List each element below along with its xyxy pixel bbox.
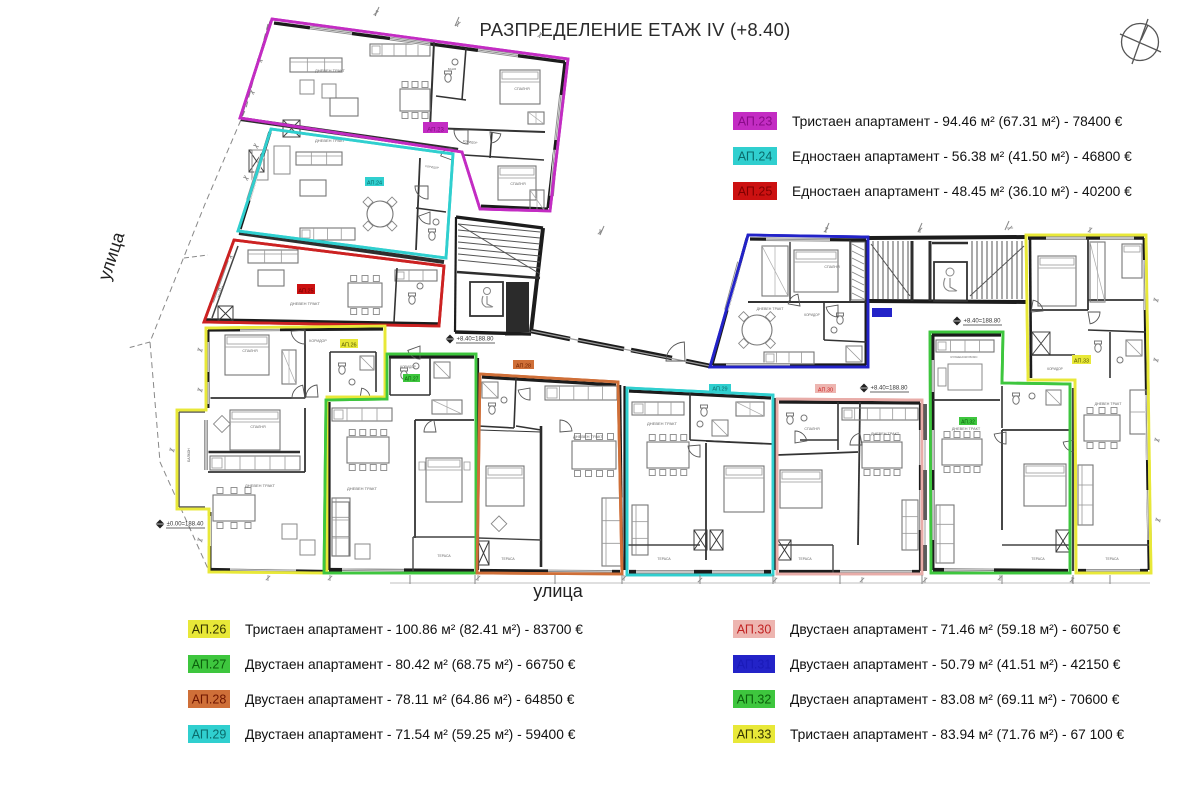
svg-text:ДНЕВЕН ТРАКТ: ДНЕВЕН ТРАКТ — [347, 486, 377, 491]
svg-text:ДНЕВЕН ТРАКТ: ДНЕВЕН ТРАКТ — [871, 432, 900, 436]
svg-text:СПАЛНЯ: СПАЛНЯ — [804, 427, 820, 431]
svg-text:АП.25: АП.25 — [298, 289, 313, 295]
svg-text:КОРИДОР: КОРИДОР — [1047, 367, 1062, 371]
svg-text:КОРИДОР: КОРИДОР — [804, 313, 819, 317]
svg-text:АП.32: АП.32 — [961, 420, 975, 426]
svg-text:+8.40=188.80: +8.40=188.80 — [870, 386, 908, 392]
svg-text:АП.30: АП.30 — [737, 623, 772, 637]
svg-text:АП.27: АП.27 — [405, 377, 419, 383]
svg-text:Тристаен апартамент - 83.94 м²: Тристаен апартамент - 83.94 м² (71.76 м²… — [790, 727, 1124, 742]
svg-text:АП.25: АП.25 — [738, 185, 773, 199]
svg-text:Едностаен апартамент - 48.45 м: Едностаен апартамент - 48.45 м² (36.10 м… — [792, 184, 1132, 199]
svg-text:СПАЛНЯ: СПАЛНЯ — [510, 182, 526, 186]
svg-text:Двустаен апартамент - 71.46 м²: Двустаен апартамент - 71.46 м² (59.18 м²… — [790, 622, 1121, 637]
svg-text:АП.28: АП.28 — [192, 693, 227, 707]
svg-text:СПАЛНЯ: СПАЛНЯ — [824, 265, 840, 269]
svg-text:БАЛКОН: БАЛКОН — [187, 448, 191, 462]
svg-text:КУХНЕНСКИ БОКС: КУХНЕНСКИ БОКС — [950, 355, 978, 359]
svg-text:Двустаен апартамент - 78.11 м²: Двустаен апартамент - 78.11 м² (64.86 м²… — [245, 692, 575, 707]
svg-text:АП.24: АП.24 — [367, 181, 382, 187]
svg-text:±0.00=188.40: ±0.00=188.40 — [167, 522, 204, 528]
svg-text:КОРИДОР: КОРИДОР — [309, 339, 327, 343]
svg-text:улица: улица — [533, 581, 583, 601]
svg-text:ТЕРАСА: ТЕРАСА — [437, 554, 451, 558]
svg-text:АП.28: АП.28 — [516, 364, 531, 370]
svg-text:ТЕРАСА: ТЕРАСА — [1105, 557, 1119, 561]
svg-text:Тристаен апартамент - 100.86 м: Тристаен апартамент - 100.86 м² (82.41 м… — [245, 622, 583, 637]
svg-text:ДНЕВЕН ТРАКТ: ДНЕВЕН ТРАКТ — [315, 68, 345, 73]
svg-text:+8.40=188.80: +8.40=188.80 — [456, 337, 494, 343]
svg-text:АП.27: АП.27 — [192, 658, 227, 672]
svg-text:Едностаен апартамент - 56.38 м: Едностаен апартамент - 56.38 м² (41.50 м… — [792, 149, 1132, 164]
svg-text:СПАЛНЯ: СПАЛНЯ — [242, 349, 258, 353]
svg-text:РАЗПРЕДЕЛЕНИЕ ЕТАЖ IV (+8.40): РАЗПРЕДЕЛЕНИЕ ЕТАЖ IV (+8.40) — [479, 19, 790, 40]
svg-text:АП.24: АП.24 — [738, 150, 773, 164]
svg-text:АП.31: АП.31 — [737, 658, 772, 672]
svg-text:БАНЯ: БАНЯ — [448, 67, 456, 71]
svg-text:ДНЕВЕН ТРАКТ: ДНЕВЕН ТРАКТ — [647, 421, 677, 426]
svg-text:АП.23: АП.23 — [738, 115, 773, 129]
svg-text:Двустаен апартамент - 71.54 м²: Двустаен апартамент - 71.54 м² (59.25 м²… — [245, 727, 576, 742]
svg-text:СПАЛНЯ: СПАЛНЯ — [514, 87, 530, 91]
svg-text:ТЕРАСА: ТЕРАСА — [501, 557, 515, 561]
svg-text:Тристаен апартамент - 94.46 м²: Тристаен апартамент - 94.46 м² (67.31 м²… — [792, 114, 1123, 129]
svg-text:ТЕРАСА: ТЕРАСА — [798, 557, 812, 561]
svg-text:АП.32: АП.32 — [737, 693, 772, 707]
svg-text:АП.29: АП.29 — [192, 728, 227, 742]
svg-text:АП.33: АП.33 — [737, 728, 772, 742]
svg-text:АП.26: АП.26 — [341, 343, 356, 349]
svg-text:ДНЕВЕН ТРАКТ: ДНЕВЕН ТРАКТ — [757, 307, 785, 311]
svg-text:+8.40=188.80: +8.40=188.80 — [963, 319, 1001, 325]
svg-text:ДНЕВЕН ТРАКТ: ДНЕВЕН ТРАКТ — [573, 434, 603, 439]
svg-text:СПАЛНЯ: СПАЛНЯ — [250, 425, 266, 429]
svg-text:ДНЕВЕН ТРАКТ: ДНЕВЕН ТРАКТ — [1095, 402, 1123, 406]
svg-text:ТЕРАСА: ТЕРАСА — [1031, 557, 1045, 561]
svg-text:ДНЕВЕН ТРАКТ: ДНЕВЕН ТРАКТ — [290, 301, 320, 306]
svg-text:Двустаен апартамент - 80.42 м²: Двустаен апартамент - 80.42 м² (68.75 м²… — [245, 657, 576, 672]
svg-text:КОРИДОР: КОРИДОР — [400, 365, 415, 369]
svg-text:Двустаен апартамент - 83.08 м²: Двустаен апартамент - 83.08 м² (69.11 м²… — [790, 692, 1120, 707]
svg-text:ДНЕВЕН ТРАКТ: ДНЕВЕН ТРАКТ — [952, 427, 981, 431]
svg-text:АП.26: АП.26 — [192, 623, 227, 637]
svg-text:ДНЕВЕН ТРАКТ: ДНЕВЕН ТРАКТ — [245, 483, 275, 488]
svg-text:Двустаен апартамент - 50.79 м²: Двустаен апартамент - 50.79 м² (41.51 м²… — [790, 657, 1121, 672]
svg-text:АП.30: АП.30 — [818, 388, 833, 394]
svg-text:АП.33: АП.33 — [1074, 359, 1089, 365]
svg-text:ТЕРАСА: ТЕРАСА — [657, 557, 671, 561]
svg-text:АП.23: АП.23 — [427, 128, 444, 134]
